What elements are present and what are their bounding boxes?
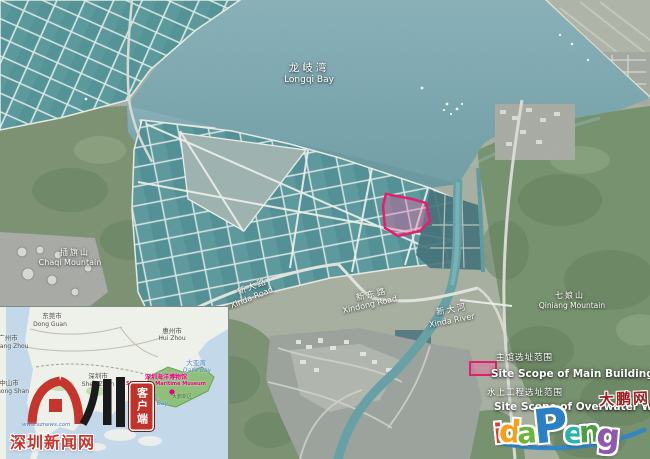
sznews-client-badge-text: 客户端 <box>134 387 150 426</box>
site-main-label-en: Site Scope of Main Building <box>491 369 650 381</box>
news-photo-map: 龙岐湾 Longqi Bay 插旗山 Chaqi Mountain 七娘山 Qi… <box>0 0 650 459</box>
idapeng-wordmark: i d a P e n g <box>494 392 616 450</box>
inset-label-huizhou-en: Hui Zhou <box>142 336 202 342</box>
inset-label-dongguan-zh: 东莞市 <box>20 313 84 320</box>
inset-label-daya-bay-zh: 大亚湾 <box>166 360 226 367</box>
sznews-logo: 客户端 www.sznews.com 深圳新闻网 <box>10 372 172 452</box>
sznews-url: www.sznews.com <box>22 422 70 428</box>
sznews-site-name: 深圳新闻网 <box>10 429 160 453</box>
inset-label-guangzhou-zh: 广州市 <box>0 335 30 342</box>
bay-label-zh: 龙岐湾 <box>274 63 344 75</box>
mountain-left-label-en: Chaqi Mountain <box>35 259 105 268</box>
inset-label-dongguan-en: Dong Guan <box>16 322 84 328</box>
site-main-label-zh: 主馆选址范围 <box>496 354 553 363</box>
idapeng-letter: g <box>594 415 619 456</box>
idapeng-logo: 大鹏网 i d a P e n g <box>492 390 650 459</box>
inset-label-guangzhou-en: Guang Zhou <box>0 344 36 350</box>
mountain-right-label-zh: 七娘山 <box>540 292 600 301</box>
sznews-client-badge: 客户端 <box>128 381 155 432</box>
mountain-left-label-zh: 插旗山 <box>45 249 105 258</box>
bay-label-en: Longqi Bay <box>274 76 344 86</box>
mountain-right-label-en: Qiniang Mountain <box>537 302 607 310</box>
inset-label-huizhou-zh: 惠州市 <box>142 328 202 335</box>
